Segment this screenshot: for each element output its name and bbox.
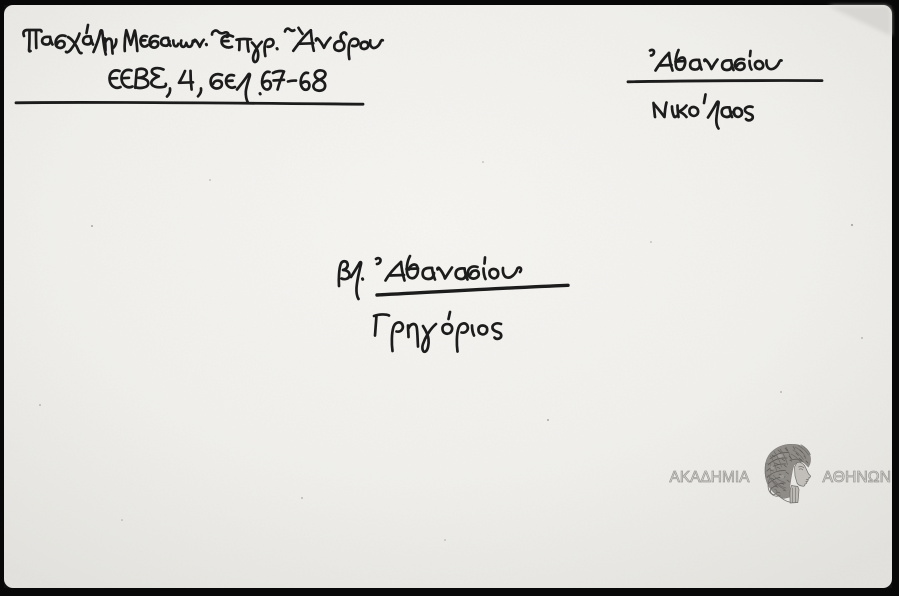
svg-text:ΑΚΑΔΗΜΙΑ: ΑΚΑΔΗΜΙΑ [670,469,751,486]
svg-text:ΑΘΗΝΩΝ: ΑΘΗΝΩΝ [823,469,892,486]
